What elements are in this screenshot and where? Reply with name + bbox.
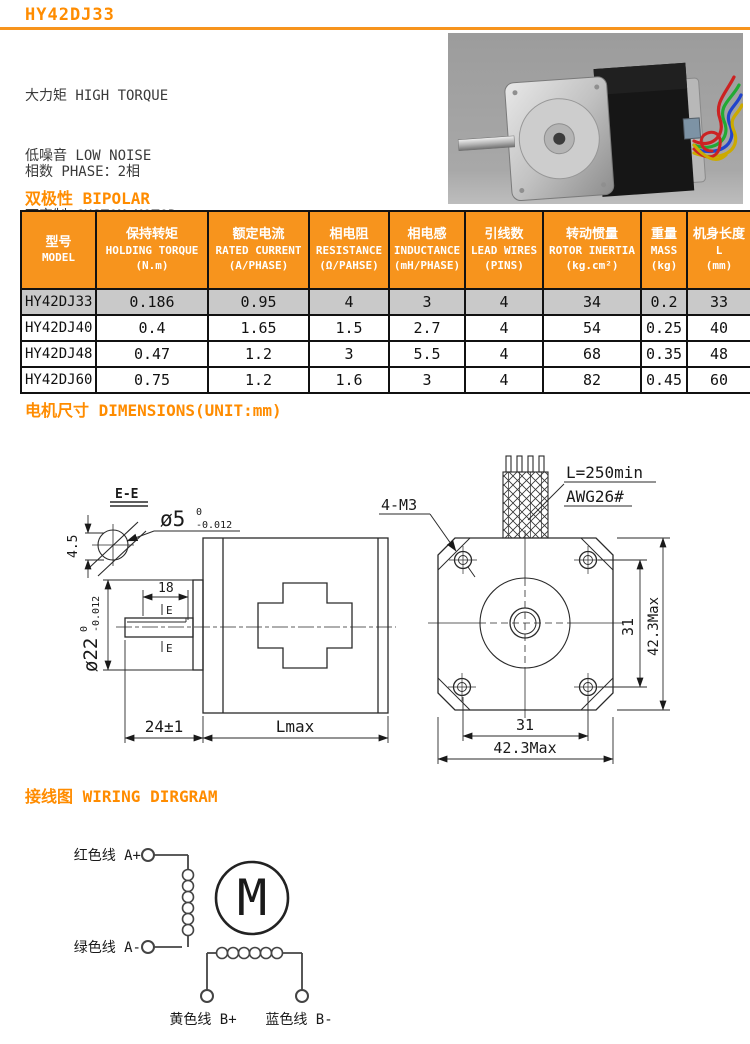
dim-label: 24±1	[145, 717, 184, 736]
model-cell: HY42DJ48	[21, 341, 96, 367]
phase-a-circuit	[142, 849, 194, 953]
value-cell: 4	[465, 341, 543, 367]
wire-label-b-plus: 黄色线 B+	[169, 1011, 236, 1028]
motor-letter: M	[237, 869, 267, 927]
value-cell: 0.75	[96, 367, 208, 393]
dim-label: ø22	[80, 638, 102, 672]
value-cell: 60	[687, 367, 750, 393]
table-row: HY42DJ33 0.186 0.95 4 3 4 34 0.2 33	[21, 289, 750, 315]
spec-table: 型号MODEL 保持转矩HOLDING TORQUE(N.m) 额定电流RATE…	[20, 210, 750, 394]
value-cell: 40	[687, 315, 750, 341]
value-cell: 5.5	[389, 341, 465, 367]
dim-hole-pitch-vertical: 31	[598, 560, 647, 687]
dim-shaft-diameter: ø5 0 -0.012	[127, 507, 240, 541]
value-cell: 48	[687, 341, 750, 367]
dim-label: 18	[158, 581, 174, 596]
dim-label: 4.5	[66, 535, 81, 558]
col-header-resistance: 相电阻RESISTANCE(Ω/PAHSE)	[309, 211, 389, 289]
col-header-mass: 重量MASS(kg)	[641, 211, 687, 289]
datasheet-page: HY42DJ33 大力矩 HIGH TORQUE 低噪音 LOW NOISE 可…	[0, 0, 750, 1044]
wiring-diagram: 红色线 A+ 绿色线 A- 黄色线 B+ 蓝色线 B-	[0, 810, 450, 1044]
dim-tol-lo: -0.012	[91, 596, 102, 632]
dim-tol-lo: -0.012	[196, 520, 232, 531]
motor-photo	[448, 33, 743, 204]
value-cell: 4	[465, 289, 543, 315]
col-header-rated-current: 额定电流RATED CURRENT(A/PHASE)	[208, 211, 309, 289]
terminal-a-minus	[142, 941, 154, 953]
value-cell: 1.6	[309, 367, 389, 393]
dim-protrusion: 24±1	[125, 640, 203, 743]
dim-label: Lmax	[276, 717, 315, 736]
front-view-outline	[438, 538, 613, 710]
value-cell: 54	[543, 315, 641, 341]
front-view-centerlines	[428, 530, 622, 718]
phase-b-circuit	[201, 948, 308, 1003]
section-cut-mark: E	[166, 604, 173, 617]
col-header-inductance: 相电感INDUCTANCE(mH/PHASE)	[389, 211, 465, 289]
page-title: HY42DJ33	[25, 5, 115, 25]
value-cell: 4	[465, 315, 543, 341]
dim-label: 4-M3	[381, 496, 417, 514]
side-view-outline	[125, 538, 388, 713]
value-cell: 0.4	[96, 315, 208, 341]
dim-tol-hi: 0	[196, 507, 202, 518]
dim-label: 31	[619, 618, 637, 636]
value-cell: 0.47	[96, 341, 208, 367]
value-cell: 2.7	[389, 315, 465, 341]
col-header-holding-torque: 保持转矩HOLDING TORQUE(N.m)	[96, 211, 208, 289]
value-cell: 33	[687, 289, 750, 315]
dim-label: 31	[516, 716, 534, 734]
dim-label: ø5	[160, 507, 185, 531]
model-cell: HY42DJ60	[21, 367, 96, 393]
value-cell: 34	[543, 289, 641, 315]
spec-line: 相数 PHASE：2相	[25, 162, 297, 182]
value-cell: 0.2	[641, 289, 687, 315]
table-header-row: 型号MODEL 保持转矩HOLDING TORQUE(N.m) 额定电流RATE…	[21, 211, 750, 289]
title-divider	[0, 27, 750, 30]
model-cell: HY42DJ33	[21, 289, 96, 315]
wire-label-b-minus: 蓝色线 B-	[265, 1011, 332, 1028]
value-cell: 4	[465, 367, 543, 393]
coil-phase-a	[183, 870, 194, 936]
label-mount-holes: 4-M3	[379, 496, 475, 577]
wire-label-a-plus: 红色线 A+	[74, 847, 141, 864]
value-cell: 82	[543, 367, 641, 393]
col-header-rotor-inertia: 转动惯量ROTOR INERTIA(kg.cm²)	[543, 211, 641, 289]
value-cell: 3	[389, 367, 465, 393]
dim-hole-pitch-horizontal: 31	[463, 697, 588, 741]
model-cell: HY42DJ40	[21, 315, 96, 341]
value-cell: 1.65	[208, 315, 309, 341]
value-cell: 1.2	[208, 367, 309, 393]
value-cell: 3	[309, 341, 389, 367]
section-heading-bipolar: 双极性 BIPOLAR	[25, 185, 150, 209]
value-cell: 0.186	[96, 289, 208, 315]
coil-phase-b	[217, 948, 283, 959]
col-header-model: 型号MODEL	[21, 211, 96, 289]
section-label: E-E	[115, 487, 138, 502]
value-cell: 0.35	[641, 341, 687, 367]
feature-line: 大力矩 HIGH TORQUE	[25, 86, 177, 106]
motor-symbol: M	[216, 862, 288, 934]
dimension-drawing: E-E ø5 0 -0.012 4.5	[0, 440, 750, 775]
lead-wire-bundle	[503, 456, 548, 538]
value-cell: 0.25	[641, 315, 687, 341]
value-cell: 4	[309, 289, 389, 315]
dim-body-length: Lmax	[203, 716, 388, 743]
dim-label: AWG26#	[566, 487, 624, 506]
col-header-lead-wires: 引线数LEAD WIRES(PINS)	[465, 211, 543, 289]
table-row: HY42DJ60 0.75 1.2 1.6 3 4 82 0.45 60	[21, 367, 750, 393]
terminal-b-plus	[201, 990, 213, 1002]
section-cut-mark: E	[166, 642, 173, 655]
value-cell: 0.45	[641, 367, 687, 393]
value-cell: 1.2	[208, 341, 309, 367]
table-row: HY42DJ40 0.4 1.65 1.5 2.7 4 54 0.25 40	[21, 315, 750, 341]
terminal-b-minus	[296, 990, 308, 1002]
dim-label: 42.3Max	[646, 597, 662, 656]
value-cell: 68	[543, 341, 641, 367]
value-cell: 3	[389, 289, 465, 315]
wire-label-a-minus: 绿色线 A-	[74, 939, 141, 956]
value-cell: 1.5	[309, 315, 389, 341]
dim-boss-diameter: ø22 0 -0.012	[79, 580, 193, 672]
terminal-a-plus	[142, 849, 154, 861]
table-row: HY42DJ48 0.47 1.2 3 5.5 4 68 0.35 48	[21, 341, 750, 367]
value-cell: 0.95	[208, 289, 309, 315]
section-ee: E-E	[90, 487, 148, 576]
dim-label: 42.3Max	[493, 739, 556, 757]
dim-label: L=250min	[566, 463, 643, 482]
section-heading-dimensions: 电机尺寸 DIMENSIONS(UNIT:mm)	[25, 397, 282, 421]
col-header-length: 机身长度L(mm)	[687, 211, 750, 289]
dim-tol-hi: 0	[79, 626, 90, 632]
section-heading-wiring: 接线图 WIRING DIRGRAM	[25, 783, 218, 807]
